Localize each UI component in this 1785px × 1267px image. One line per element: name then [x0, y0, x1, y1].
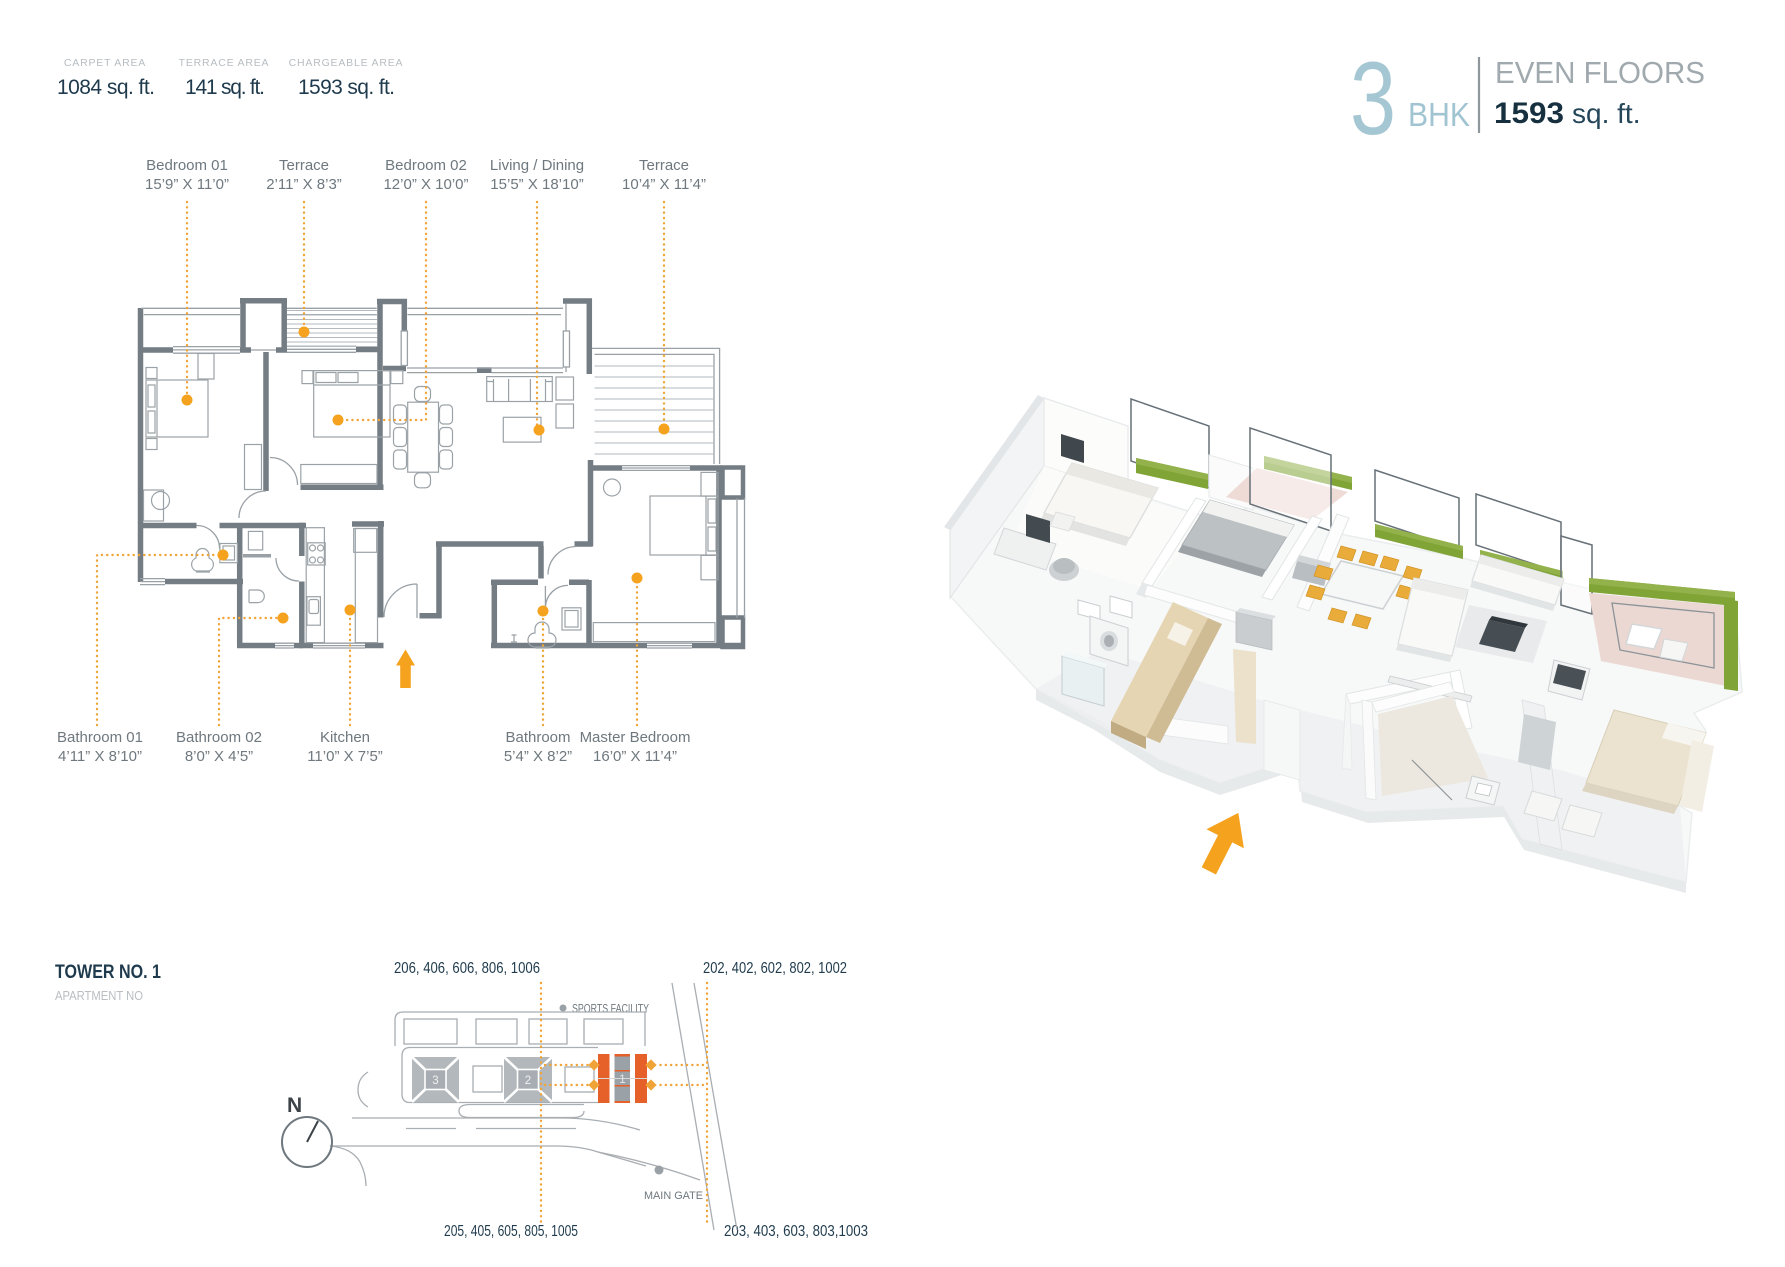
svg-text:2: 2 — [525, 1075, 531, 1087]
svg-text:2’11” X 8’3”: 2’11” X 8’3” — [266, 176, 342, 193]
svg-text:1593 sq. ft.: 1593 sq. ft. — [298, 76, 395, 99]
svg-text:Terrace: Terrace — [639, 157, 689, 174]
svg-text:EVEN FLOORS: EVEN FLOORS — [1495, 55, 1705, 90]
svg-text:Bathroom 02: Bathroom 02 — [176, 729, 262, 746]
svg-text:Bedroom 01: Bedroom 01 — [146, 157, 228, 174]
svg-text:203, 403, 603, 803,1003: 203, 403, 603, 803,1003 — [724, 1223, 868, 1240]
svg-text:205, 405, 605, 805, 1005: 205, 405, 605, 805, 1005 — [444, 1223, 578, 1240]
svg-text:1084 sq. ft.: 1084 sq. ft. — [57, 76, 155, 99]
svg-text:8’0” X 4’5”: 8’0” X 4’5” — [185, 748, 253, 765]
svg-text:BHK: BHK — [1408, 96, 1470, 133]
svg-text:SPORTS FACILITY: SPORTS FACILITY — [572, 1004, 649, 1016]
svg-text:CHARGEABLE AREA: CHARGEABLE AREA — [289, 57, 404, 69]
svg-text:1593: 1593 — [1494, 97, 1564, 130]
svg-text:3: 3 — [432, 1075, 438, 1087]
svg-text:Kitchen: Kitchen — [320, 729, 370, 746]
svg-text:Bedroom 02: Bedroom 02 — [385, 157, 467, 174]
svg-text:APARTMENT NO: APARTMENT NO — [55, 988, 143, 1003]
svg-text:Living / Dining: Living / Dining — [490, 157, 584, 174]
svg-text:202, 402, 602, 802, 1002: 202, 402, 602, 802, 1002 — [703, 960, 847, 977]
svg-text:TOWER NO. 1: TOWER NO. 1 — [55, 962, 161, 983]
svg-text:Terrace: Terrace — [279, 157, 329, 174]
svg-text:1: 1 — [619, 1074, 625, 1086]
svg-text:206, 406, 606, 806, 1006: 206, 406, 606, 806, 1006 — [394, 960, 540, 977]
svg-text:N: N — [287, 1094, 302, 1117]
svg-text:Bathroom 01: Bathroom 01 — [57, 729, 143, 746]
svg-text:Master Bedroom: Master Bedroom — [580, 729, 691, 746]
svg-text:4’11” X 8’10”: 4’11” X 8’10” — [58, 748, 142, 765]
svg-text:Bathroom: Bathroom — [505, 729, 570, 746]
svg-text:15’5” X 18’10”: 15’5” X 18’10” — [490, 176, 583, 193]
svg-text:TERRACE AREA: TERRACE AREA — [179, 57, 270, 69]
svg-text:11’0” X 7’5”: 11’0” X 7’5” — [307, 748, 383, 765]
svg-text:10’4” X 11’4”: 10’4” X 11’4” — [622, 176, 706, 193]
svg-text:3: 3 — [1350, 41, 1396, 157]
svg-text:5’4” X 8’2”: 5’4” X 8’2” — [504, 748, 572, 765]
svg-text:CARPET AREA: CARPET AREA — [64, 57, 146, 69]
svg-text:12’0” X 10’0”: 12’0” X 10’0” — [383, 176, 468, 193]
svg-text:MAIN GATE: MAIN GATE — [644, 1190, 703, 1202]
svg-text:sq. ft.: sq. ft. — [1572, 98, 1640, 129]
svg-text:15’9” X 11’0”: 15’9” X 11’0” — [145, 176, 229, 193]
svg-text:141 sq. ft.: 141 sq. ft. — [185, 76, 265, 99]
svg-text:16’0” X 11’4”: 16’0” X 11’4” — [593, 748, 677, 765]
